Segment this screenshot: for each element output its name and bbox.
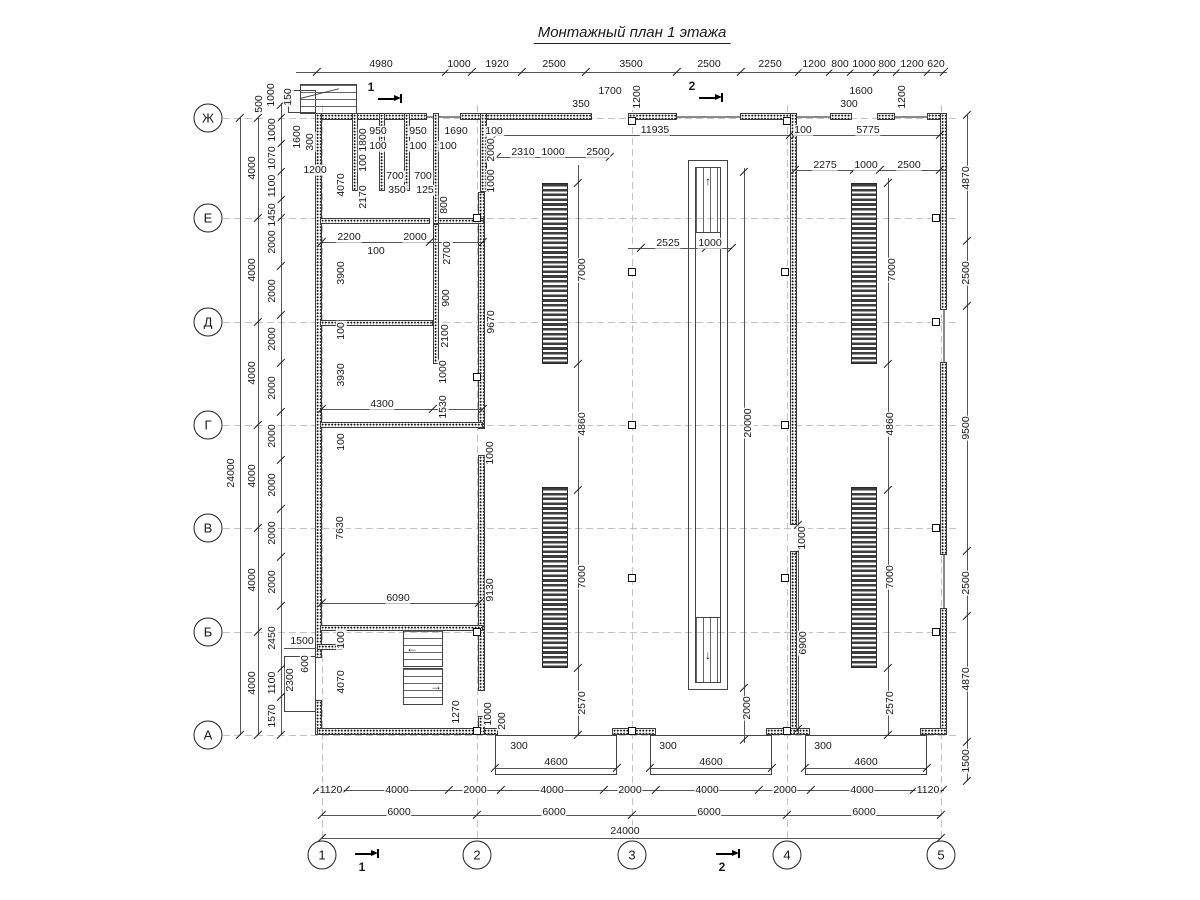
dimension-label: 9670	[486, 309, 497, 334]
dimension-label: 1120	[319, 785, 344, 796]
grid-row-bubble-Б: Б	[194, 618, 223, 647]
dimension-label: 2170	[358, 184, 369, 209]
dimension-label: 200	[497, 711, 508, 731]
section-mark-label: 1	[359, 860, 366, 874]
column-marker	[473, 214, 481, 222]
dimension-label: 100	[366, 246, 386, 257]
dimension-label: 4000	[849, 785, 874, 796]
dimension-label: 125	[415, 185, 435, 196]
section-mark-label: 2	[689, 79, 696, 93]
dimension-label: 2500	[541, 59, 566, 70]
grid-row-bubble-Д: Д	[194, 308, 223, 337]
dimension-label: 1000	[540, 147, 565, 158]
dimension-label: 6900	[798, 630, 809, 655]
dimension-label: 350	[387, 185, 407, 196]
dimension-label: 5775	[855, 125, 880, 136]
dimension-label: 2500	[961, 570, 972, 595]
dimension-label: 2000	[267, 423, 278, 448]
dimension-label: 950	[368, 126, 388, 137]
grid-row-bubble-Г: Г	[194, 411, 223, 440]
column-marker	[473, 373, 481, 381]
dimension-label: 2450	[267, 625, 278, 650]
dimension-line	[322, 838, 941, 839]
dimension-label: 6000	[386, 807, 411, 818]
dimension-label: 1500	[289, 636, 314, 647]
column-marker	[473, 727, 481, 735]
dimension-label: 2000	[772, 785, 797, 796]
dimension-label: 300	[305, 132, 316, 152]
window-line	[797, 116, 830, 118]
dimension-label: 2100	[440, 323, 451, 348]
dimension-label: 1000	[266, 82, 277, 107]
section-arrow	[378, 98, 394, 100]
dimension-label: 2000	[402, 232, 427, 243]
wall-segment	[317, 728, 498, 735]
dimension-label: 800	[877, 59, 897, 70]
dimension-label: 300	[813, 741, 833, 752]
dimension-label: 2000	[462, 785, 487, 796]
wall-segment	[940, 608, 947, 735]
grid-col-bubble-4: 4	[773, 841, 802, 870]
dimension-label: 1530	[438, 394, 449, 419]
dimension-label: 1600	[292, 124, 303, 149]
dimension-label: 24000	[609, 826, 640, 837]
dimension-label: 1100	[267, 174, 278, 199]
dimension-label: 1690	[443, 126, 468, 137]
window-line	[943, 555, 945, 608]
grid-axis-line	[322, 105, 323, 848]
dimension-line	[240, 118, 241, 735]
column-marker	[628, 117, 636, 125]
dimension-label: 100	[336, 432, 347, 452]
grid-col-bubble-5: 5	[927, 841, 956, 870]
column-marker	[781, 268, 789, 276]
dimension-line	[578, 165, 579, 735]
dimension-label: 4000	[247, 257, 258, 282]
equipment-rack	[542, 183, 568, 364]
dimension-label: 9130	[485, 577, 496, 602]
dimension-line	[258, 118, 259, 735]
dimension-label: 700	[413, 171, 433, 182]
dimension-label: 500	[254, 94, 265, 114]
wall-segment	[920, 728, 947, 735]
dimension-label: 1000	[697, 238, 722, 249]
dimension-label: 4600	[853, 757, 878, 768]
dimension-label: 4600	[543, 757, 568, 768]
stair-flight	[300, 84, 357, 114]
dimension-label: 4000	[694, 785, 719, 796]
dimension-label: 4000	[247, 155, 258, 180]
dimension-label: 4070	[336, 669, 347, 694]
column-marker	[628, 421, 636, 429]
dimension-label: 620	[926, 59, 946, 70]
dimension-label: 1100	[267, 671, 278, 696]
direction-arrow-icon: →	[430, 680, 442, 692]
page-title: Монтажный план 1 этажа	[534, 24, 731, 44]
dimension-label: 1800	[358, 127, 369, 152]
dimension-label: 2000	[267, 472, 278, 497]
dimension-label: 11935	[640, 125, 670, 136]
column-marker	[628, 268, 636, 276]
dimension-label: 2500	[696, 59, 721, 70]
dimension-label: 3900	[336, 260, 347, 285]
dimension-label: 7000	[885, 564, 896, 589]
dimension-label: 1000	[267, 117, 278, 142]
wall-segment	[877, 113, 895, 120]
dimension-label: 1000	[853, 160, 878, 171]
dimension-label: 2500	[896, 160, 921, 171]
window-line	[677, 116, 740, 118]
section-arrow	[716, 853, 732, 855]
dimension-label: 4860	[885, 411, 896, 436]
dimension-label: 2700	[442, 240, 453, 265]
dimension-label: 300	[839, 99, 859, 110]
column-marker	[628, 574, 636, 582]
dimension-label: 1600	[848, 86, 873, 97]
dimension-label: 1200	[302, 165, 327, 176]
grid-row-bubble-Е: Е	[194, 204, 223, 233]
dimension-label: 1000	[486, 168, 497, 193]
dimension-label: 7630	[335, 515, 346, 540]
dimension-label: 4300	[369, 399, 394, 410]
section-arrow-bar	[400, 94, 402, 103]
dimension-label: 4000	[539, 785, 564, 796]
column-marker	[932, 318, 940, 326]
dimension-line	[495, 768, 617, 769]
dimension-line	[805, 768, 927, 769]
dimension-label: 2570	[577, 690, 588, 715]
dimension-label: 9500	[961, 415, 972, 440]
grid-row-bubble-Ж: Ж	[194, 104, 223, 133]
dimension-label: 4000	[247, 463, 258, 488]
floor-plan-canvas: Монтажный план 1 этажа ↑↓←→ЖЕДГВБА123454…	[0, 0, 1200, 900]
grid-row-bubble-А: А	[194, 721, 223, 750]
wall-segment	[830, 113, 852, 120]
grid-axis-line	[212, 528, 958, 529]
section-arrow	[699, 97, 715, 99]
dimension-label: 800	[830, 59, 850, 70]
dimension-label: 2310	[510, 147, 535, 158]
wall-segment	[940, 113, 947, 310]
dimension-label: 1000	[438, 359, 449, 384]
wall-segment	[320, 422, 483, 428]
dimension-line	[650, 768, 772, 769]
dimension-label: 1920	[484, 59, 509, 70]
window-line	[427, 116, 460, 118]
grid-row-bubble-В: В	[194, 514, 223, 543]
dimension-line	[284, 648, 316, 649]
dimension-label: 300	[509, 741, 529, 752]
wall-segment	[940, 362, 947, 555]
direction-arrow-icon: ←	[406, 642, 418, 654]
equipment-rack	[851, 183, 877, 364]
dimension-label: 1500	[961, 748, 972, 773]
dimension-label: 1000	[446, 59, 471, 70]
dimension-label: 1450	[267, 202, 278, 227]
dimension-label: 100	[336, 321, 347, 341]
dimension-label: 100	[484, 126, 504, 137]
column-marker	[932, 524, 940, 532]
dimension-label: 2525	[655, 238, 680, 249]
dimension-label: 3930	[336, 362, 347, 387]
dimension-label: 150	[283, 87, 294, 107]
dimension-label: 950	[408, 126, 428, 137]
section-arrow	[355, 853, 371, 855]
dimension-label: 2500	[585, 147, 610, 158]
dimension-label: 4870	[961, 666, 972, 691]
dimension-label: 800	[439, 195, 450, 215]
section-arrow-bar	[377, 849, 379, 858]
direction-arrow-icon: ↑	[705, 175, 711, 187]
section-mark-label: 1	[368, 80, 375, 94]
equipment-rack	[851, 487, 877, 668]
dimension-label: 2000	[742, 695, 753, 720]
dimension-label: 4870	[961, 165, 972, 190]
dimension-label: 2000	[267, 569, 278, 594]
dimension-label: 900	[441, 288, 452, 308]
dimension-label: 300	[658, 741, 678, 752]
wall-segment	[317, 113, 427, 120]
dimension-label: 600	[300, 654, 311, 674]
section-arrow-bar	[738, 849, 740, 858]
column-marker	[781, 574, 789, 582]
dimension-label: 2000	[486, 137, 497, 162]
dimension-label: 6000	[541, 807, 566, 818]
dimension-label: 2570	[885, 690, 896, 715]
wall-segment	[478, 455, 485, 691]
dimension-label: 4000	[247, 360, 258, 385]
dimension-label: 6000	[851, 807, 876, 818]
column-marker	[783, 727, 791, 735]
wall-segment	[315, 113, 322, 658]
dimension-label: 3500	[618, 59, 643, 70]
dimension-label: 2000	[617, 785, 642, 796]
dimension-label: 1570	[267, 703, 278, 728]
direction-arrow-icon: ↓	[705, 649, 711, 661]
dimension-label: 1270	[451, 699, 462, 724]
dimension-label: 1000	[483, 701, 494, 726]
column-marker	[932, 214, 940, 222]
section-arrow-bar	[721, 93, 723, 102]
dimension-line	[744, 168, 745, 743]
dimension-label: 4070	[336, 172, 347, 197]
dimension-label: 100	[368, 141, 388, 152]
dimension-label: 2000	[267, 229, 278, 254]
dimension-label: 1120	[916, 785, 941, 796]
dimension-label: 100	[793, 125, 813, 136]
dimension-label: 1200	[632, 84, 643, 109]
dimension-label: 1700	[597, 86, 622, 97]
dimension-label: 4000	[247, 670, 258, 695]
equipment-rack	[542, 487, 568, 668]
dimension-label: 100	[408, 141, 428, 152]
dimension-label: 700	[385, 171, 405, 182]
dimension-label: 1200	[801, 59, 826, 70]
column-marker	[473, 628, 481, 636]
column-marker	[932, 628, 940, 636]
dimension-label: 1070	[267, 145, 278, 170]
dimension-label: 7000	[577, 564, 588, 589]
grid-axis-line	[632, 105, 633, 848]
grid-axis-line	[787, 105, 788, 848]
column-marker	[628, 727, 636, 735]
dimension-label: 2250	[757, 59, 782, 70]
dimension-label: 100	[336, 630, 347, 650]
dimension-label: 2000	[267, 278, 278, 303]
dimension-label: 350	[571, 99, 591, 110]
dimension-label: 2000	[267, 520, 278, 545]
dimension-label: 4860	[577, 411, 588, 436]
column-marker	[781, 421, 789, 429]
dimension-label: 2200	[336, 232, 361, 243]
dimension-label: 1000	[797, 525, 808, 550]
dimension-label: 4000	[384, 785, 409, 796]
grid-axis-line	[212, 632, 958, 633]
grid-col-bubble-3: 3	[618, 841, 647, 870]
grid-col-bubble-1: 1	[308, 841, 337, 870]
dimension-label: 7000	[887, 257, 898, 282]
dimension-label: 1000	[851, 59, 876, 70]
dimension-label: 24000	[226, 457, 237, 488]
dimension-label: 2000	[267, 326, 278, 351]
dimension-label: 2000	[267, 375, 278, 400]
wall-segment	[320, 218, 430, 224]
dimension-label: 1200	[899, 59, 924, 70]
dimension-label: 2500	[961, 260, 972, 285]
dimension-label: 2300	[285, 667, 296, 692]
dimension-label: 6090	[385, 593, 410, 604]
grid-col-bubble-2: 2	[463, 841, 492, 870]
dimension-label: 1200	[897, 84, 908, 109]
column-marker	[783, 117, 791, 125]
dimension-label: 100	[438, 141, 458, 152]
window-line	[943, 310, 945, 362]
dimension-line	[322, 409, 483, 410]
dimension-label: 7000	[577, 257, 588, 282]
dimension-label: 2275	[812, 160, 837, 171]
dimension-label: 4000	[247, 567, 258, 592]
dimension-label: 6000	[696, 807, 721, 818]
dimension-label: 4980	[368, 59, 393, 70]
dimension-label: 20000	[743, 407, 754, 438]
dimension-label: 1000	[485, 440, 496, 465]
dimension-label: 4600	[698, 757, 723, 768]
dimension-label: 100	[358, 153, 369, 173]
section-mark-label: 2	[719, 860, 726, 874]
window-line	[895, 116, 927, 118]
